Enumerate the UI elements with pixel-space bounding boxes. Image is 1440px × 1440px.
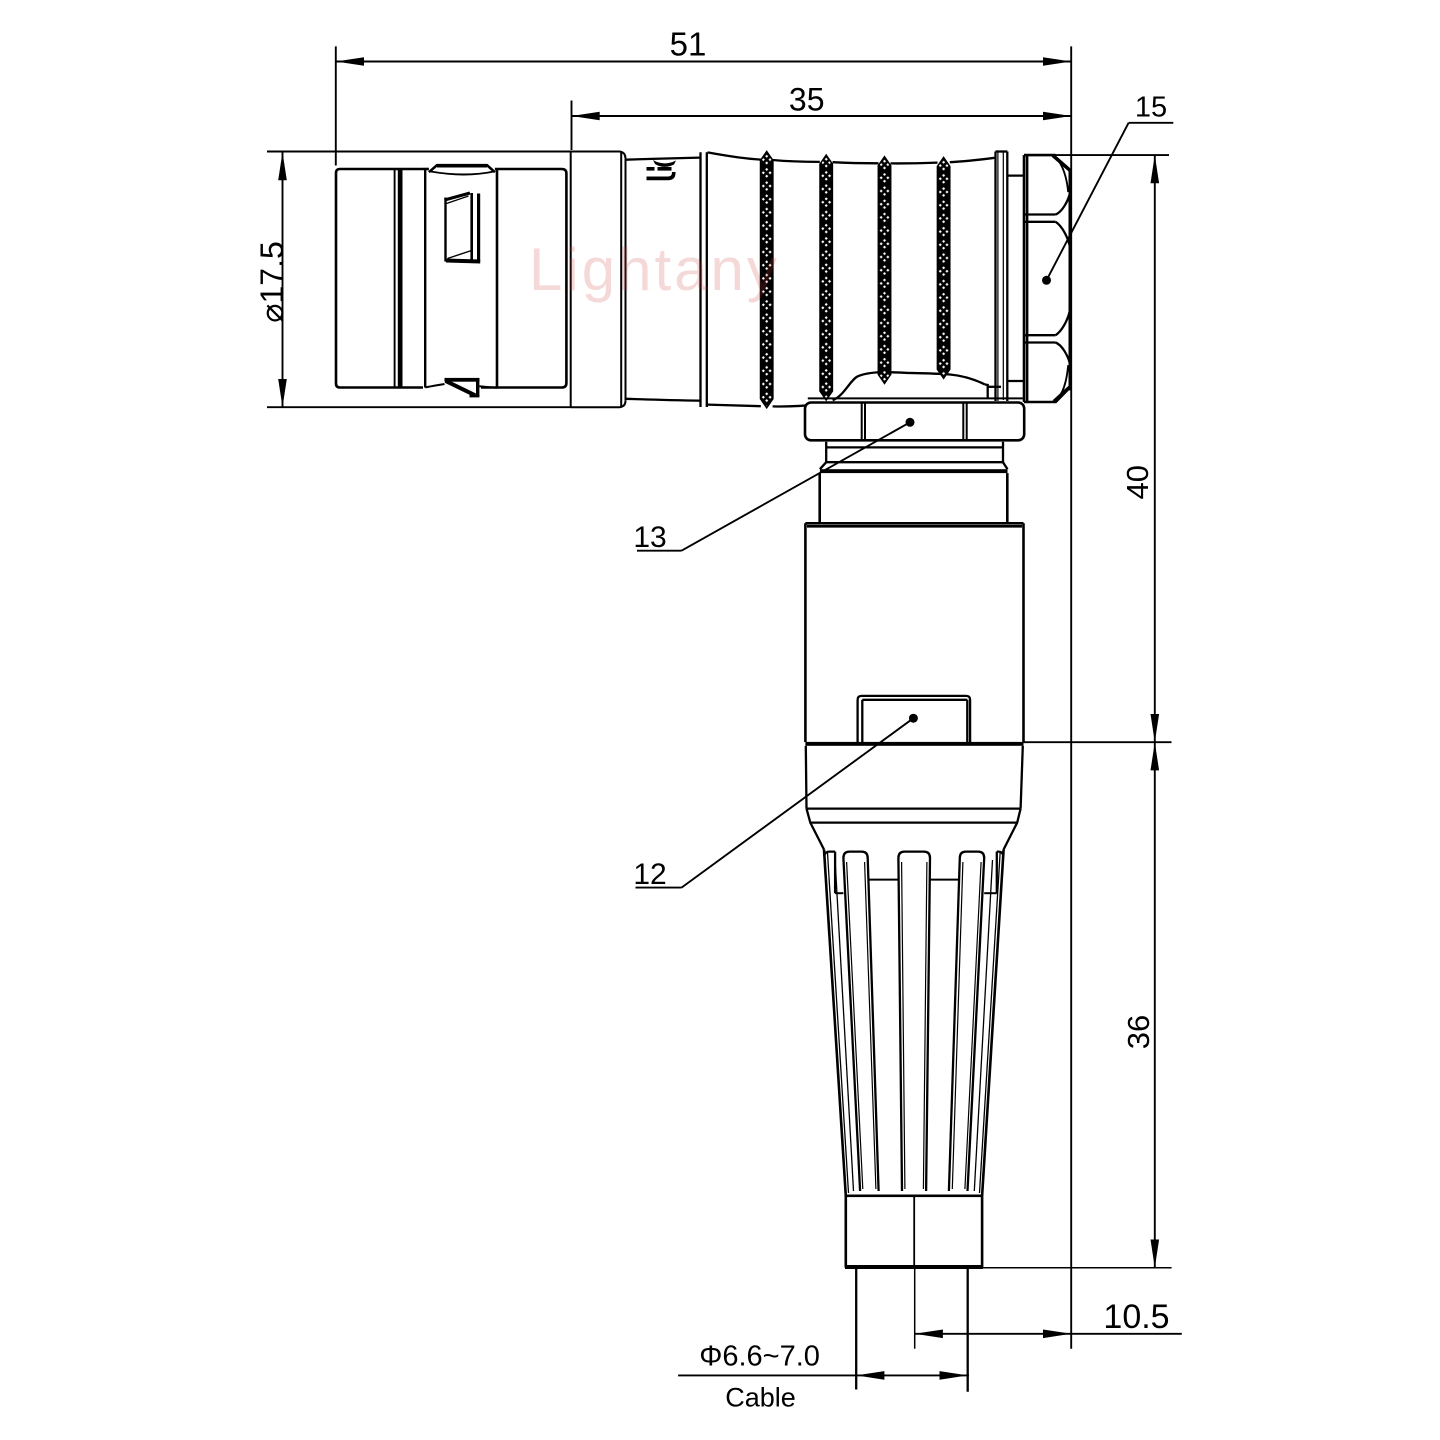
svg-text:⌀17.5: ⌀17.5 [254, 241, 290, 323]
svg-text:51: 51 [670, 26, 707, 63]
svg-text:40: 40 [1120, 465, 1155, 499]
svg-text:35: 35 [789, 82, 825, 118]
svg-text:13: 13 [633, 521, 666, 554]
svg-text:10.5: 10.5 [1103, 1298, 1169, 1336]
svg-text:Φ6.6~7.0: Φ6.6~7.0 [699, 1341, 820, 1373]
svg-text:Lightany: Lightany [529, 236, 780, 303]
svg-text:Cable: Cable [725, 1383, 796, 1413]
svg-text:36: 36 [1121, 1015, 1156, 1049]
svg-text:15: 15 [1135, 92, 1167, 124]
svg-text:12: 12 [633, 858, 666, 891]
